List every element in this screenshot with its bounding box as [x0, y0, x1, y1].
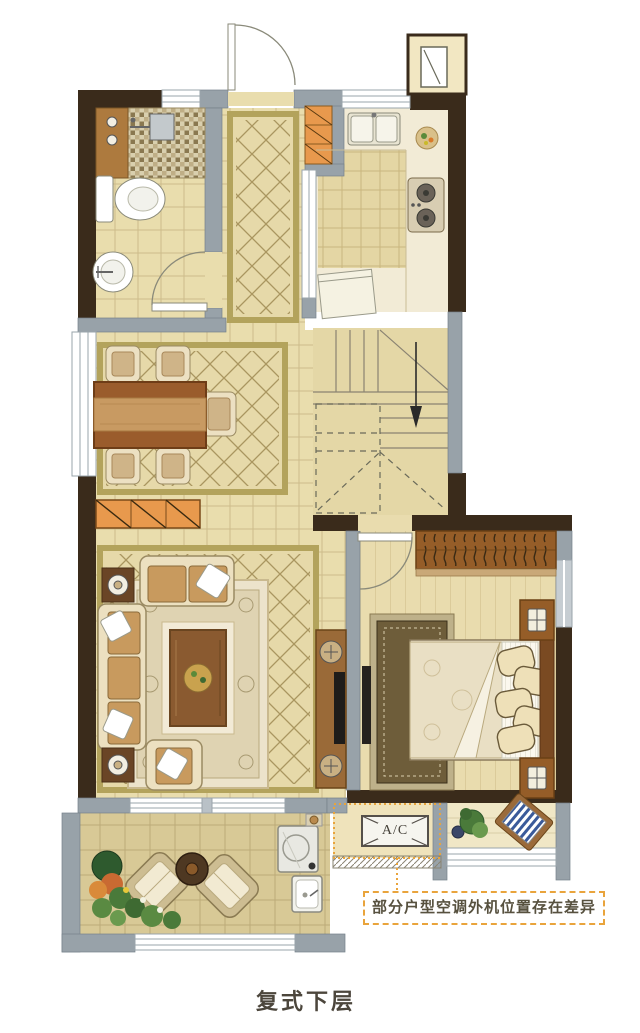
dining-chair — [202, 392, 236, 436]
floorplan-page: A/C 部分户型空调外机位置存在差异 复式下层 — [0, 0, 640, 1033]
tv-cabinet — [316, 630, 346, 788]
shoe-cabinet — [305, 106, 332, 164]
wall-stair-right — [448, 473, 466, 517]
frame-shoe-cabinet — [332, 106, 344, 170]
service-platform — [408, 35, 466, 94]
wall-bedroom-right-gray — [556, 531, 572, 561]
wall-bedroom-top-left — [313, 515, 358, 531]
wall-kitchen-right — [448, 94, 466, 312]
bed — [410, 636, 554, 764]
bedroom-door-opening — [358, 515, 412, 531]
laundry-sink — [292, 876, 322, 912]
window-living-south — [130, 798, 285, 813]
gas-stove — [408, 178, 444, 232]
wall-stair-right-gray — [448, 312, 462, 473]
headboard — [540, 636, 554, 764]
sofa-three-seat — [98, 604, 146, 750]
loveseat — [140, 556, 234, 606]
fridge — [318, 269, 376, 318]
entry-door-opening — [228, 92, 294, 106]
wall-left-upper — [78, 90, 96, 318]
nightstand — [520, 600, 554, 640]
side-table-lamp — [102, 748, 134, 782]
sideboard-cabinet — [96, 500, 200, 528]
wardrobe — [416, 531, 556, 576]
dining-chair — [106, 448, 140, 484]
dining-chair — [156, 448, 190, 484]
ac-label: A/C — [378, 823, 412, 839]
pier-ac-left — [327, 798, 347, 813]
wall-laundry-right — [556, 803, 570, 880]
pier-living-south-right — [285, 798, 327, 813]
living-room — [98, 548, 346, 790]
entry-door-swing-icon — [235, 25, 295, 85]
wall-kitchen-top — [410, 94, 448, 110]
window-bedroom-right — [556, 560, 572, 627]
tea-table — [176, 853, 208, 885]
wall-bedroom-top — [412, 515, 572, 531]
wall-bedroom-right — [556, 627, 572, 803]
tv-living — [334, 672, 345, 744]
wall-bath-south — [78, 318, 226, 332]
armchair — [146, 740, 202, 790]
window-dining-left — [72, 332, 96, 476]
pier-living-south-left — [78, 798, 130, 813]
vanity-bowl — [107, 117, 117, 127]
wall-balcony-left — [62, 813, 80, 952]
bathroom-door-leaf — [152, 303, 207, 311]
tv-bedroom — [362, 666, 371, 744]
dining-chair — [106, 346, 140, 382]
entry-door — [228, 24, 295, 106]
window-kitchen-top — [342, 90, 410, 108]
cutting-board — [416, 127, 438, 149]
dining-table — [94, 382, 206, 448]
wall-living-bedroom — [346, 531, 360, 790]
bedroom-door-leaf — [358, 533, 412, 541]
wall-kitchen-west-stub — [302, 298, 316, 318]
kitchen-sink — [348, 113, 400, 146]
floor-caption: 复式下层 — [256, 984, 356, 1016]
pier-entry-left — [200, 90, 228, 108]
bathroom-door-opening — [205, 252, 222, 308]
vanity-bowl — [107, 135, 117, 145]
side-table-lamp — [102, 568, 134, 602]
dining-chair — [156, 346, 190, 382]
pier-entry-right — [294, 90, 342, 108]
hall-runner-lattice — [236, 120, 290, 314]
table-plant — [184, 664, 212, 692]
pier-balcony-se — [295, 934, 345, 952]
nightstand — [520, 758, 554, 798]
ac-note-box: 部分户型空调外机位置存在差异 — [363, 891, 605, 925]
floor-plan-image — [0, 0, 640, 1033]
laundry-rail — [447, 848, 556, 866]
toilet — [96, 176, 165, 222]
stair-floor — [313, 328, 450, 515]
entry-door-leaf — [228, 24, 235, 90]
window-bath-top — [162, 90, 200, 108]
pedestal-sink — [93, 252, 133, 292]
pier-balcony-sw — [62, 934, 135, 952]
balcony-rail — [135, 934, 295, 950]
coffee-table — [170, 630, 226, 726]
wall-bath-east — [205, 108, 222, 252]
wall-left-lower — [78, 476, 96, 800]
window-kitchen-west — [302, 170, 316, 298]
